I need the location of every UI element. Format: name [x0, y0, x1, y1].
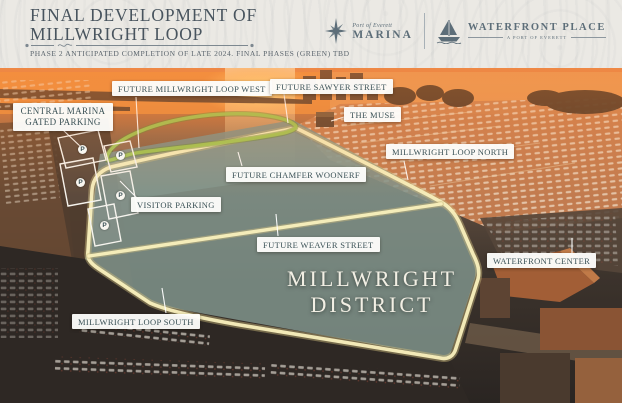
millwright-loop-infographic: FINAL DEVELOPMENT OF MILLWRIGHT LOOP PHA…	[0, 0, 622, 403]
label-future-weaver-street: FUTURE WEAVER STREET	[257, 237, 380, 252]
waterfront-place-logo: WATERFRONT PLACE A PORT OF EVERETT	[436, 18, 606, 44]
label-future-chamfer-woonerf: FUTURE CHAMFER WOONERF	[226, 167, 366, 182]
label-central-marina-gated-parking: CENTRAL MARINA GATED PARKING	[13, 103, 113, 131]
waterfront-logo-name: WATERFRONT PLACE	[468, 22, 606, 33]
parking-marker-icon: P	[78, 145, 87, 154]
title-line-1: FINAL DEVELOPMENT OF	[30, 6, 257, 25]
logo-divider	[424, 13, 425, 49]
parking-marker-icon: P	[116, 151, 125, 160]
tagline-text: A PORT OF EVERETT	[507, 35, 567, 40]
district-title: MILLWRIGHT DISTRICT	[272, 266, 472, 318]
district-title-line-1: MILLWRIGHT	[272, 266, 472, 292]
marina-logo-name: MARINA	[352, 31, 413, 40]
compass-star-icon	[325, 18, 347, 44]
header: FINAL DEVELOPMENT OF MILLWRIGHT LOOP PHA…	[0, 0, 622, 68]
label-millwright-loop-south: MILLWRIGHT LOOP SOUTH	[72, 314, 200, 329]
district-title-line-2: DISTRICT	[272, 292, 472, 318]
parking-marker-icon: P	[100, 221, 109, 230]
waterfront-logo-text: WATERFRONT PLACE A PORT OF EVERETT	[468, 22, 606, 40]
tagline-rule-left	[468, 37, 503, 38]
page-title: FINAL DEVELOPMENT OF MILLWRIGHT LOOP	[30, 6, 257, 44]
label-millwright-loop-north: MILLWRIGHT LOOP NORTH	[386, 144, 514, 159]
marina-logo-text: Port of Everett MARINA	[352, 22, 413, 40]
label-future-millwright-loop-west: FUTURE MILLWRIGHT LOOP WEST	[112, 81, 272, 96]
waterfront-logo-tagline: A PORT OF EVERETT	[468, 35, 606, 40]
label-future-sawyer-street: FUTURE SAWYER STREET	[270, 79, 393, 94]
parking-marker-icon: P	[76, 178, 85, 187]
subtitle: PHASE 2 ANTICIPATED COMPLETION OF LATE 2…	[30, 49, 350, 58]
aerial-photo-area: CENTRAL MARINA GATED PARKING FUTURE MILL…	[0, 68, 622, 403]
port-of-everett-marina-logo: Port of Everett MARINA	[325, 18, 413, 44]
parking-marker-icon: P	[116, 191, 125, 200]
logo-group: Port of Everett MARINA WATERFRONT PL	[325, 13, 606, 49]
label-visitor-parking: VISITOR PARKING	[131, 197, 221, 212]
sailboat-icon	[436, 18, 462, 44]
label-waterfront-center: WATERFRONT CENTER	[487, 253, 596, 268]
label-the-muse: THE MUSE	[344, 107, 401, 122]
tagline-rule-right	[571, 37, 606, 38]
